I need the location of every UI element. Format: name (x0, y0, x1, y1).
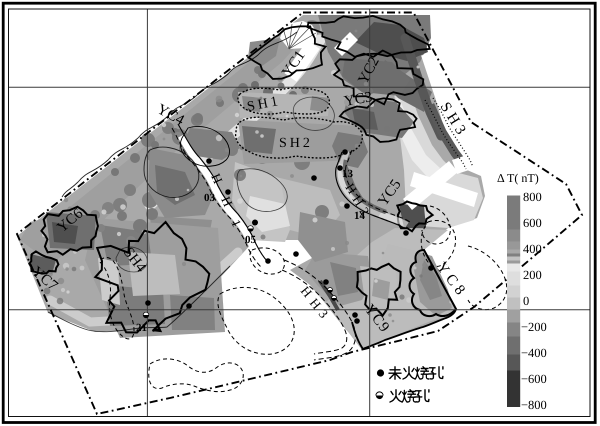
svg-text:−400: −400 (521, 346, 547, 360)
svg-text:400: 400 (523, 242, 542, 256)
svg-text:Δ T( nT): Δ T( nT) (497, 171, 539, 185)
svg-text:21: 21 (136, 322, 147, 334)
svg-text:0: 0 (523, 294, 529, 308)
svg-text:03: 03 (204, 192, 216, 204)
svg-text:13: 13 (342, 168, 354, 180)
svg-text:600: 600 (523, 216, 542, 230)
svg-text:SH2: SH2 (279, 136, 313, 151)
svg-text:−600: −600 (521, 372, 547, 386)
svg-text:05: 05 (245, 234, 257, 246)
svg-text:−200: −200 (521, 320, 547, 334)
svg-text:14: 14 (354, 210, 366, 222)
svg-text:−800: −800 (521, 398, 547, 412)
svg-text:200: 200 (523, 268, 542, 282)
svg-text:800: 800 (523, 190, 542, 204)
